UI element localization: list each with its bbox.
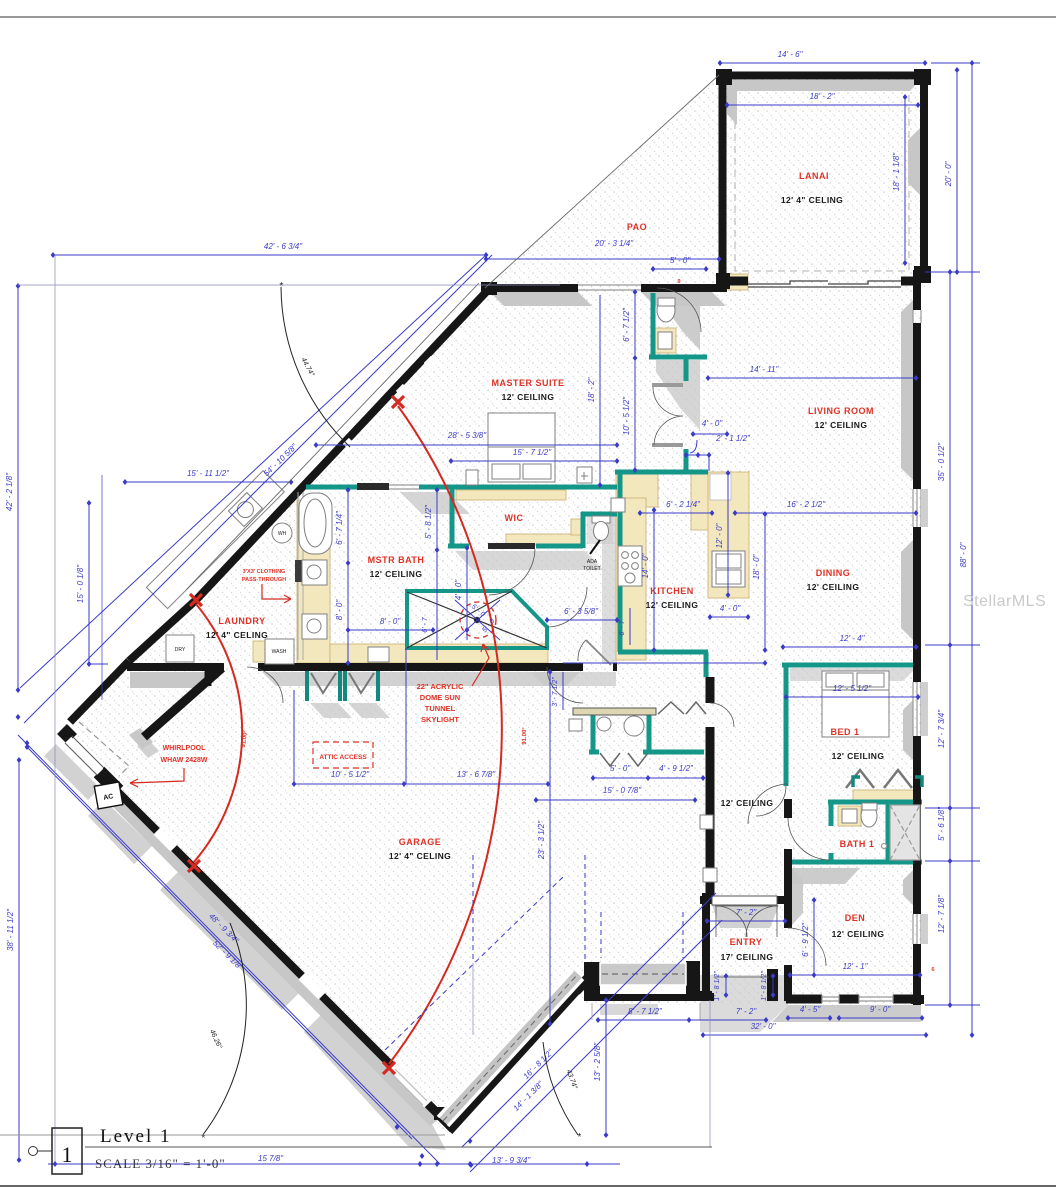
svg-text:12' CEILING: 12' CEILING	[721, 798, 774, 808]
svg-text:BED 1: BED 1	[830, 727, 859, 737]
svg-text:14' - 6": 14' - 6"	[778, 50, 804, 59]
svg-text:12' CEILING: 12' CEILING	[807, 582, 860, 592]
svg-text:1' - 8 1/2": 1' - 8 1/2"	[714, 971, 721, 1001]
svg-text:18' - 2": 18' - 2"	[810, 92, 836, 101]
svg-text:12' - 1": 12' - 1"	[843, 962, 869, 971]
svg-text:8' - 7 1/2": 8' - 7 1/2"	[628, 1007, 663, 1016]
svg-text:15' - 0 1/8": 15' - 0 1/8"	[76, 564, 85, 603]
svg-text:GARAGE: GARAGE	[399, 837, 442, 847]
svg-text:PASS-THROUGH: PASS-THROUGH	[242, 577, 286, 583]
svg-text:14' - 0": 14' - 0"	[641, 552, 650, 578]
svg-text:5' - 0": 5' - 0"	[610, 764, 632, 773]
svg-text:6' - 9 1/2": 6' - 9 1/2"	[801, 922, 810, 957]
svg-text:12' - 5 1/2": 12' - 5 1/2"	[833, 684, 872, 693]
svg-text:88' - 0": 88' - 0"	[959, 541, 968, 567]
svg-text:15 7/8": 15 7/8"	[258, 1154, 284, 1163]
svg-text:23' - 3 1/2": 23' - 3 1/2"	[537, 820, 546, 860]
svg-text:12' 4" CELING: 12' 4" CELING	[781, 195, 843, 205]
svg-text:WIC: WIC	[505, 513, 524, 523]
svg-text:7' - 2": 7' - 2"	[736, 1007, 758, 1016]
svg-text:12' - 4": 12' - 4"	[840, 634, 866, 643]
svg-text:BATH 1: BATH 1	[840, 839, 875, 849]
svg-text:42' - 6 3/4": 42' - 6 3/4"	[264, 242, 303, 251]
svg-text:91.00°: 91.00°	[522, 727, 528, 745]
svg-text:16' - 2 1/2": 16' - 2 1/2"	[787, 500, 826, 509]
svg-text:35' - 0 1/2": 35' - 0 1/2"	[937, 442, 946, 481]
svg-text:DINING: DINING	[816, 568, 851, 578]
svg-text:LAUNDRY: LAUNDRY	[218, 616, 265, 626]
svg-text:PAO: PAO	[627, 222, 647, 232]
svg-text:TOILET: TOILET	[583, 566, 600, 572]
svg-text:8' - 0": 8' - 0"	[335, 599, 344, 621]
svg-text:LIVING ROOM: LIVING ROOM	[808, 406, 874, 416]
svg-text:12' - 7 1/8": 12' - 7 1/8"	[937, 894, 946, 933]
svg-text:ENTRY: ENTRY	[730, 937, 763, 947]
svg-text:9: 9	[677, 279, 680, 285]
svg-text:28' - 5 3/8": 28' - 5 3/8"	[447, 431, 487, 440]
svg-text:1' - 8 1/2": 1' - 8 1/2"	[761, 971, 768, 1001]
svg-text:17' CEILING: 17' CEILING	[721, 952, 774, 962]
svg-text:6' - 7: 6' - 7	[422, 616, 429, 632]
svg-text:15' - 11 1/2": 15' - 11 1/2"	[187, 469, 230, 478]
svg-text:12' CEILING: 12' CEILING	[832, 929, 885, 939]
svg-text:6' - 7 1/2": 6' - 7 1/2"	[622, 307, 631, 342]
svg-text:12' CEILING: 12' CEILING	[832, 751, 885, 761]
svg-text:MASTER SUITE: MASTER SUITE	[491, 378, 564, 388]
svg-text:32' - 0": 32' - 0"	[751, 1022, 777, 1031]
svg-text:6' - 2 1/4": 6' - 2 1/4"	[666, 500, 701, 509]
svg-text:13' - 9 3/4": 13' - 9 3/4"	[492, 1156, 531, 1165]
svg-text:MSTR BATH: MSTR BATH	[368, 555, 425, 565]
svg-text:5' - 8 1/2": 5' - 8 1/2"	[424, 504, 433, 539]
svg-text:2' - 1 1/2": 2' - 1 1/2"	[715, 434, 751, 443]
svg-text:LANAI: LANAI	[799, 171, 829, 181]
svg-text:SCALE 3/16" = 1'-0": SCALE 3/16" = 1'-0"	[95, 1156, 226, 1171]
svg-text:12' 4" CELING: 12' 4" CELING	[389, 851, 451, 861]
svg-text:9' - 0": 9' - 0"	[870, 1005, 892, 1014]
svg-text:4' - 0": 4' - 0"	[454, 579, 463, 601]
svg-text:4' - 5": 4' - 5"	[800, 1005, 822, 1014]
svg-text:DEN: DEN	[845, 913, 866, 923]
svg-text:6' - 7: 6' - 7	[619, 619, 626, 635]
svg-text:8' - 0": 8' - 0"	[380, 617, 402, 626]
svg-text:15' - 0 7/8": 15' - 0 7/8"	[603, 786, 642, 795]
svg-text:12' CEILING: 12' CEILING	[370, 569, 423, 579]
svg-text:12' - 7 3/4": 12' - 7 3/4"	[937, 709, 946, 748]
svg-text:18' - 1 1/8": 18' - 1 1/8"	[892, 152, 901, 191]
svg-text:WHIRLPOOL: WHIRLPOOL	[163, 745, 206, 752]
svg-text:12' CEILING: 12' CEILING	[502, 392, 555, 402]
svg-text:KITCHEN: KITCHEN	[650, 586, 694, 596]
svg-text:18' - 0": 18' - 0"	[752, 553, 761, 579]
svg-text:ATTIC ACCESS: ATTIC ACCESS	[319, 754, 367, 761]
svg-text:20' - 3 1/4": 20' - 3 1/4"	[594, 239, 634, 248]
svg-text:5' - 0": 5' - 0"	[670, 256, 692, 265]
svg-text:6' - 3 5/8": 6' - 3 5/8"	[564, 607, 599, 616]
svg-text:SKYLIGHT: SKYLIGHT	[421, 715, 459, 724]
svg-text:22" ACRYLIC: 22" ACRYLIC	[417, 682, 464, 691]
svg-text:12' CEILING: 12' CEILING	[815, 420, 868, 430]
svg-text:WH: WH	[278, 531, 287, 537]
svg-text:4' - 0": 4' - 0"	[702, 419, 724, 428]
svg-text:7' - 2": 7' - 2"	[736, 908, 758, 917]
svg-text:15' - 7 1/2": 15' - 7 1/2"	[513, 448, 552, 457]
svg-text:42' - 2 1/8": 42' - 2 1/8"	[5, 472, 14, 511]
svg-text:13' - 2 5/8": 13' - 2 5/8"	[593, 1042, 602, 1081]
svg-text:4' - 9 1/2": 4' - 9 1/2"	[659, 764, 694, 773]
svg-text:38' - 11 1/2": 38' - 11 1/2"	[6, 908, 15, 951]
svg-text:10' - 5 1/2": 10' - 5 1/2"	[331, 770, 370, 779]
svg-text:WHAW 2428W: WHAW 2428W	[160, 757, 207, 764]
svg-text:12' - 0": 12' - 0"	[715, 522, 724, 548]
svg-text:1: 1	[62, 1142, 73, 1167]
svg-text:3'X3' CLOTHING: 3'X3' CLOTHING	[243, 569, 286, 575]
svg-text:14' - 11": 14' - 11"	[750, 365, 780, 374]
svg-text:3' - 7 1/2": 3' - 7 1/2"	[552, 677, 559, 707]
svg-text:WASH: WASH	[272, 649, 287, 655]
svg-text:10' - 5 1/2": 10' - 5 1/2"	[622, 396, 631, 435]
svg-text:12' 4" CELING: 12' 4" CELING	[206, 630, 268, 640]
svg-text:StellarMLS: StellarMLS	[963, 593, 1046, 610]
svg-text:ADA: ADA	[587, 559, 598, 565]
svg-text:18' - 2": 18' - 2"	[587, 376, 596, 402]
svg-text:5' - 6 1/8": 5' - 6 1/8"	[937, 806, 946, 841]
svg-text:13' - 6 7/8": 13' - 6 7/8"	[457, 770, 496, 779]
svg-text:20' - 0": 20' - 0"	[944, 160, 953, 187]
svg-text:TUNNEL: TUNNEL	[425, 704, 456, 713]
svg-text:Level 1: Level 1	[100, 1126, 172, 1147]
svg-text:DRY: DRY	[175, 647, 186, 653]
svg-text:DOME SUN: DOME SUN	[420, 693, 460, 702]
svg-text:6: 6	[931, 967, 934, 973]
svg-text:4' - 0": 4' - 0"	[720, 604, 742, 613]
svg-text:6' - 7 1/4": 6' - 7 1/4"	[335, 510, 344, 545]
